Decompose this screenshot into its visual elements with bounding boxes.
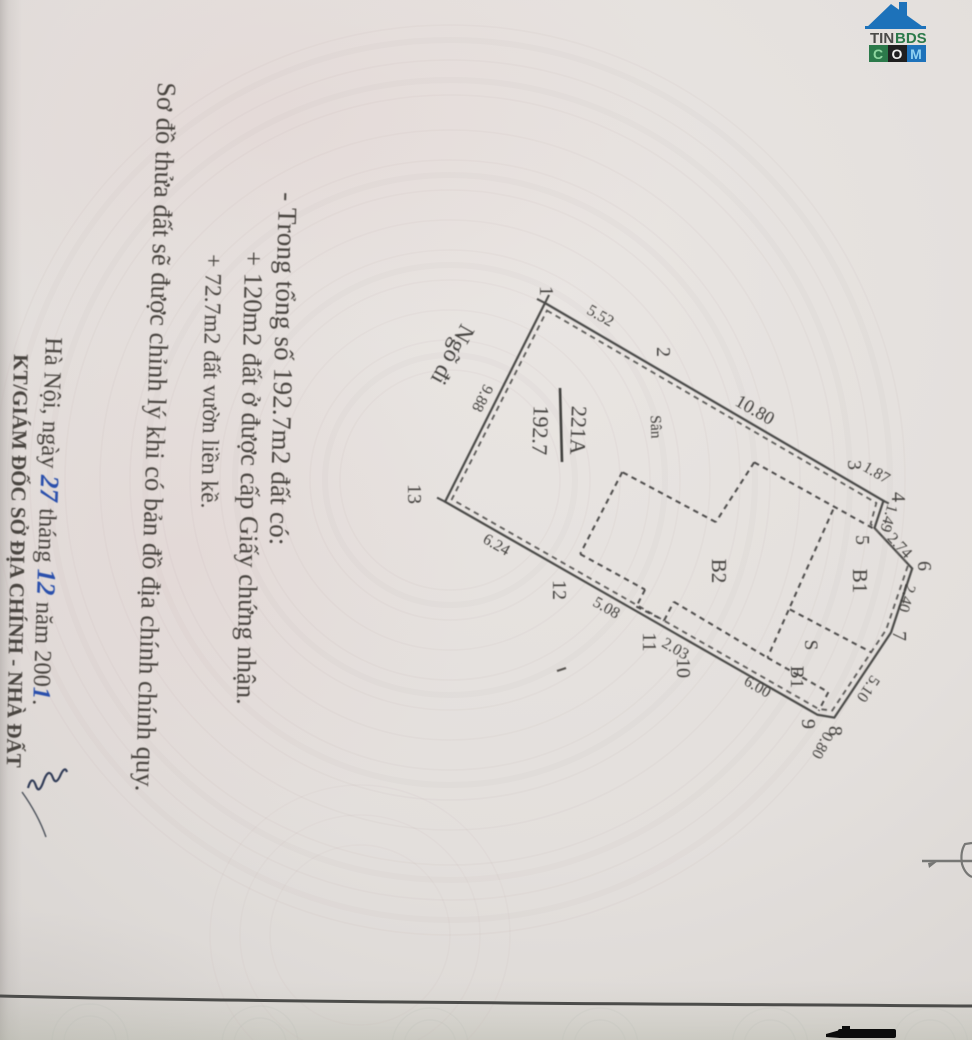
- svg-text:192.7: 192.7: [527, 405, 554, 455]
- svg-text:11: 11: [638, 632, 660, 651]
- svg-text:13: 13: [403, 484, 425, 504]
- svg-text:Sân: Sân: [647, 415, 665, 439]
- svg-text:1: 1: [535, 286, 557, 296]
- svg-text:B2: B2: [707, 559, 731, 584]
- svg-text:6: 6: [913, 561, 935, 571]
- svg-text:S: S: [800, 640, 821, 651]
- svg-text:2: 2: [652, 347, 674, 357]
- svg-text:C: C: [873, 46, 883, 62]
- svg-text:B1: B1: [786, 666, 807, 688]
- svg-text:12: 12: [548, 580, 570, 600]
- svg-text:4: 4: [887, 492, 909, 502]
- svg-text:TIN: TIN: [870, 30, 894, 47]
- svg-text:9: 9: [797, 719, 819, 729]
- svg-text:B1: B1: [848, 569, 872, 594]
- svg-text:M: M: [910, 46, 922, 62]
- svg-text:5: 5: [851, 535, 873, 545]
- svg-text:O: O: [892, 46, 903, 62]
- svg-text:7: 7: [888, 631, 910, 641]
- svg-text:221A: 221A: [565, 405, 592, 455]
- svg-text:BDS: BDS: [895, 30, 927, 47]
- svg-text:+ 72.7m2 đất vườn liền kề.: + 72.7m2 đất vườn liền kề.: [196, 254, 226, 509]
